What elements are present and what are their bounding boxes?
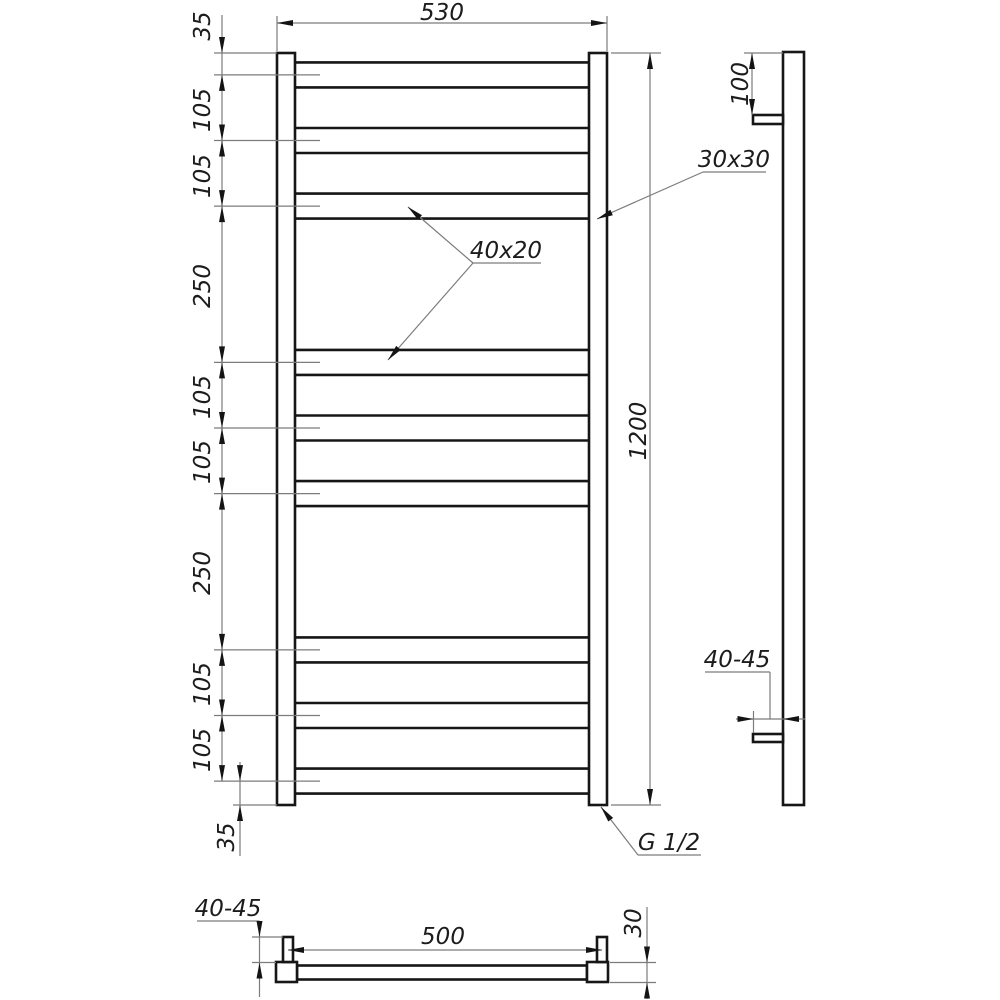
arrowhead [644,947,650,963]
arrowhead [219,412,225,428]
arrowhead [647,53,653,69]
dim-bottom-depth: 30 [621,908,647,937]
arrowhead [219,125,225,141]
dim-side-wall-distance: 40-45 [704,647,771,673]
arrowhead [644,983,650,999]
arrowhead [591,20,607,26]
arrowhead [738,716,754,722]
leader-line [388,263,473,360]
arrowhead [219,650,225,666]
arrowhead [219,478,225,494]
dim-chain-segment: 105 [190,728,216,772]
rung [294,703,590,728]
arrowhead [219,494,225,510]
arrowhead [219,362,225,378]
dim-chain-segment: 105 [190,375,216,419]
left-post [277,53,295,805]
arrowhead [277,20,293,26]
arrowhead [219,206,225,222]
arrowhead [219,75,225,91]
rung [294,194,590,219]
arrowhead [257,921,263,937]
bottom-right-square-post [587,962,608,982]
right-post [589,53,607,805]
bottom-bar-tube [297,966,587,980]
label-thread: G 1/2 [638,830,700,856]
dim-front-height: 1200 [626,402,652,461]
arrowhead [219,634,225,650]
side-bottom-wall-bracket [753,734,783,742]
rung [294,62,590,87]
dim-chain-segment: 105 [190,154,216,198]
rung [294,637,590,662]
arrowhead [219,190,225,206]
side-top-wall-bracket [753,115,783,124]
dim-chain-segment: 105 [190,440,216,484]
arrowhead [219,141,225,157]
leader-arrowhead [601,807,613,822]
arrowhead [237,805,243,821]
dim-top-gap: 35 [190,11,216,40]
dim-bottom-wall-distance: 40-45 [195,896,262,922]
rung [294,350,590,375]
arrowhead [219,700,225,716]
dim-bottom-gap: 35 [214,822,240,851]
dim-chain-segment: 105 [190,662,216,706]
arrowhead [219,346,225,362]
front-view [277,53,607,805]
side-post-bar [783,52,804,805]
arrowhead [219,37,225,53]
technical-drawing-page: 35 105 105 250 105 105 250 105 105 35 53… [0,0,1000,1000]
rung [294,769,590,794]
arrowhead [219,716,225,732]
arrowhead [219,765,225,781]
arrowhead [237,765,243,781]
dim-side-bracket-offset: 100 [728,62,754,106]
label-rung-profile: 40x20 [470,238,542,264]
rung [294,128,590,153]
dim-chain-segment: 105 [190,88,216,132]
dim-chain-segment: 250 [190,551,216,595]
dim-front-width: 530 [420,0,464,26]
arrowhead [257,963,263,979]
dim-connection-spacing: 500 [421,924,465,950]
arrowhead [647,789,653,805]
dim-chain-segment: 250 [190,264,216,308]
towel-rail-drawing: 35 105 105 250 105 105 250 105 105 35 53… [0,0,1000,1000]
rung [294,481,590,506]
label-post-profile: 30x30 [698,147,770,173]
rung [294,416,590,441]
arrowhead [219,428,225,444]
bottom-left-square-post [276,962,297,982]
